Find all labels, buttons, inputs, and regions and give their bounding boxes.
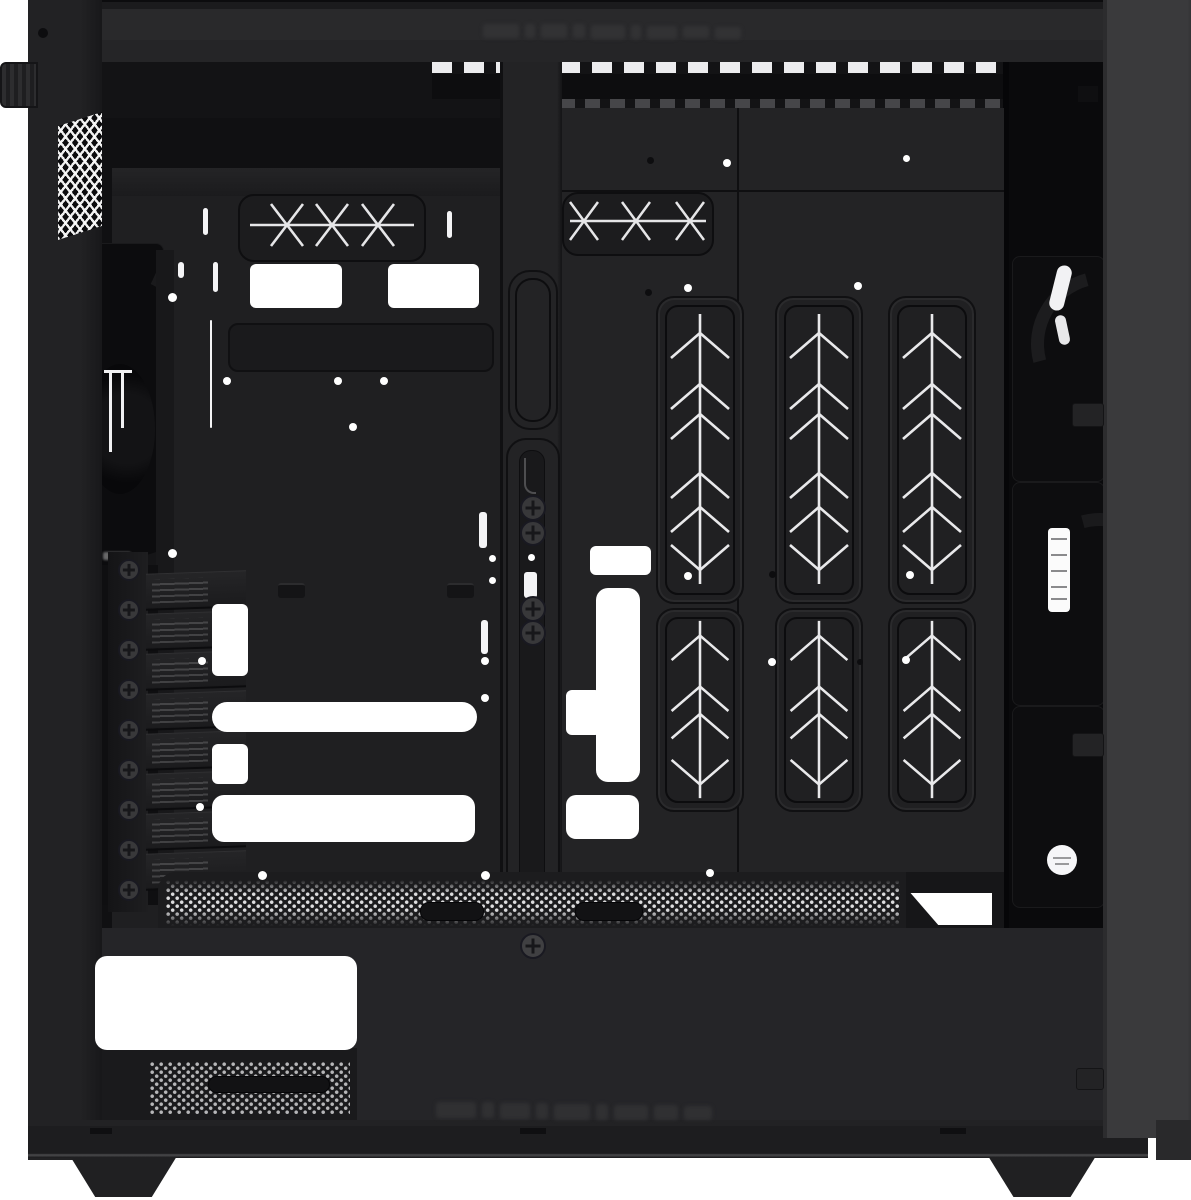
embossed-brand-top xyxy=(715,27,741,39)
embossed-brand-top xyxy=(573,24,585,38)
bottom-rail-clip xyxy=(520,1128,546,1134)
embossed-brand-bottom xyxy=(684,1106,712,1120)
embossed-brand-bottom xyxy=(536,1103,548,1119)
embossed-brand-top xyxy=(631,25,641,39)
embossed-brand-bottom xyxy=(482,1102,494,1118)
embossed-brand-top xyxy=(541,24,567,38)
embossed-brand-bottom xyxy=(500,1103,530,1119)
embossed-brand-bottom xyxy=(614,1105,648,1120)
bottom-rail-clip xyxy=(90,1128,112,1134)
embossed-branding xyxy=(0,0,1191,1200)
embossed-brand-top xyxy=(483,24,519,38)
pc-case-product-photo xyxy=(0,0,1191,1200)
embossed-brand-top xyxy=(683,26,709,38)
bottom-rail-clip xyxy=(940,1128,966,1134)
embossed-brand-top xyxy=(525,24,535,38)
embossed-brand-bottom xyxy=(654,1105,678,1120)
embossed-brand-bottom xyxy=(554,1104,590,1120)
embossed-brand-bottom xyxy=(436,1102,476,1118)
embossed-brand-top xyxy=(591,25,625,39)
embossed-brand-top xyxy=(647,26,677,39)
embossed-brand-bottom xyxy=(596,1104,608,1120)
